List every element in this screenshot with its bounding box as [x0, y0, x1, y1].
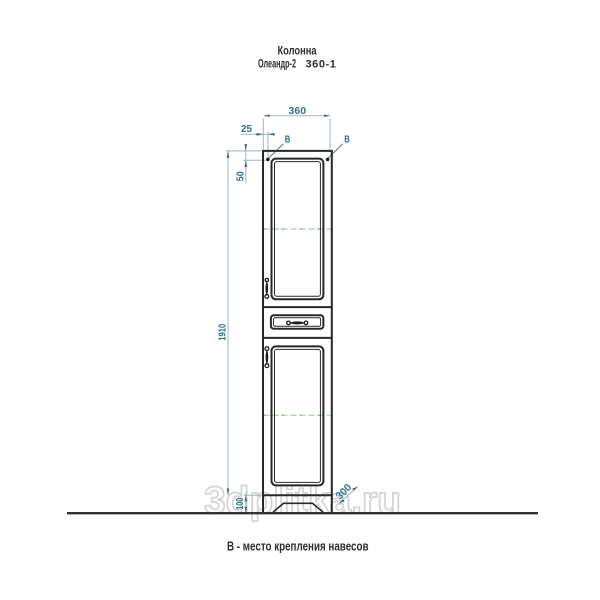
- svg-text:50: 50: [234, 171, 246, 181]
- svg-text:360: 360: [289, 105, 307, 117]
- svg-text:B: B: [344, 135, 350, 146]
- svg-text:25: 25: [241, 123, 252, 135]
- svg-text:360-1: 360-1: [306, 59, 337, 71]
- svg-text:В - место крепления навесов: В - место крепления навесов: [227, 540, 369, 554]
- svg-text:100: 100: [234, 498, 246, 510]
- svg-text:Колонна: Колонна: [278, 46, 317, 58]
- svg-text:1910: 1910: [217, 324, 229, 341]
- svg-text:B: B: [285, 135, 291, 146]
- svg-text:Олеандр-2: Олеандр-2: [258, 59, 296, 71]
